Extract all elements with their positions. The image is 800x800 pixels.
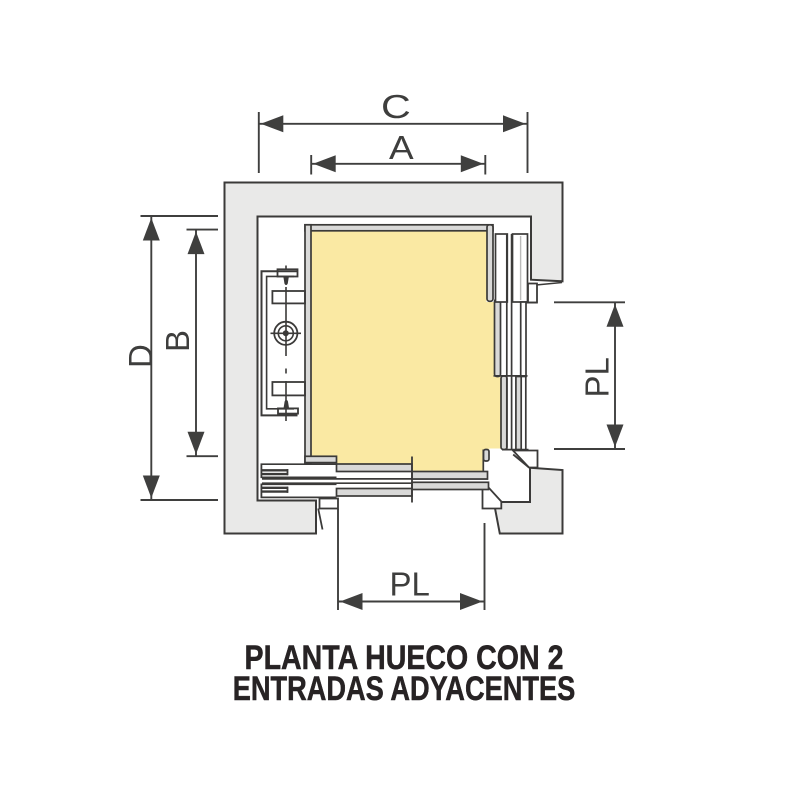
svg-text:PL: PL <box>579 357 616 397</box>
svg-text:PL: PL <box>390 566 430 603</box>
svg-text:C: C <box>381 88 411 125</box>
svg-text:D: D <box>122 344 159 368</box>
svg-text:A: A <box>389 130 414 167</box>
svg-text:B: B <box>159 330 196 352</box>
